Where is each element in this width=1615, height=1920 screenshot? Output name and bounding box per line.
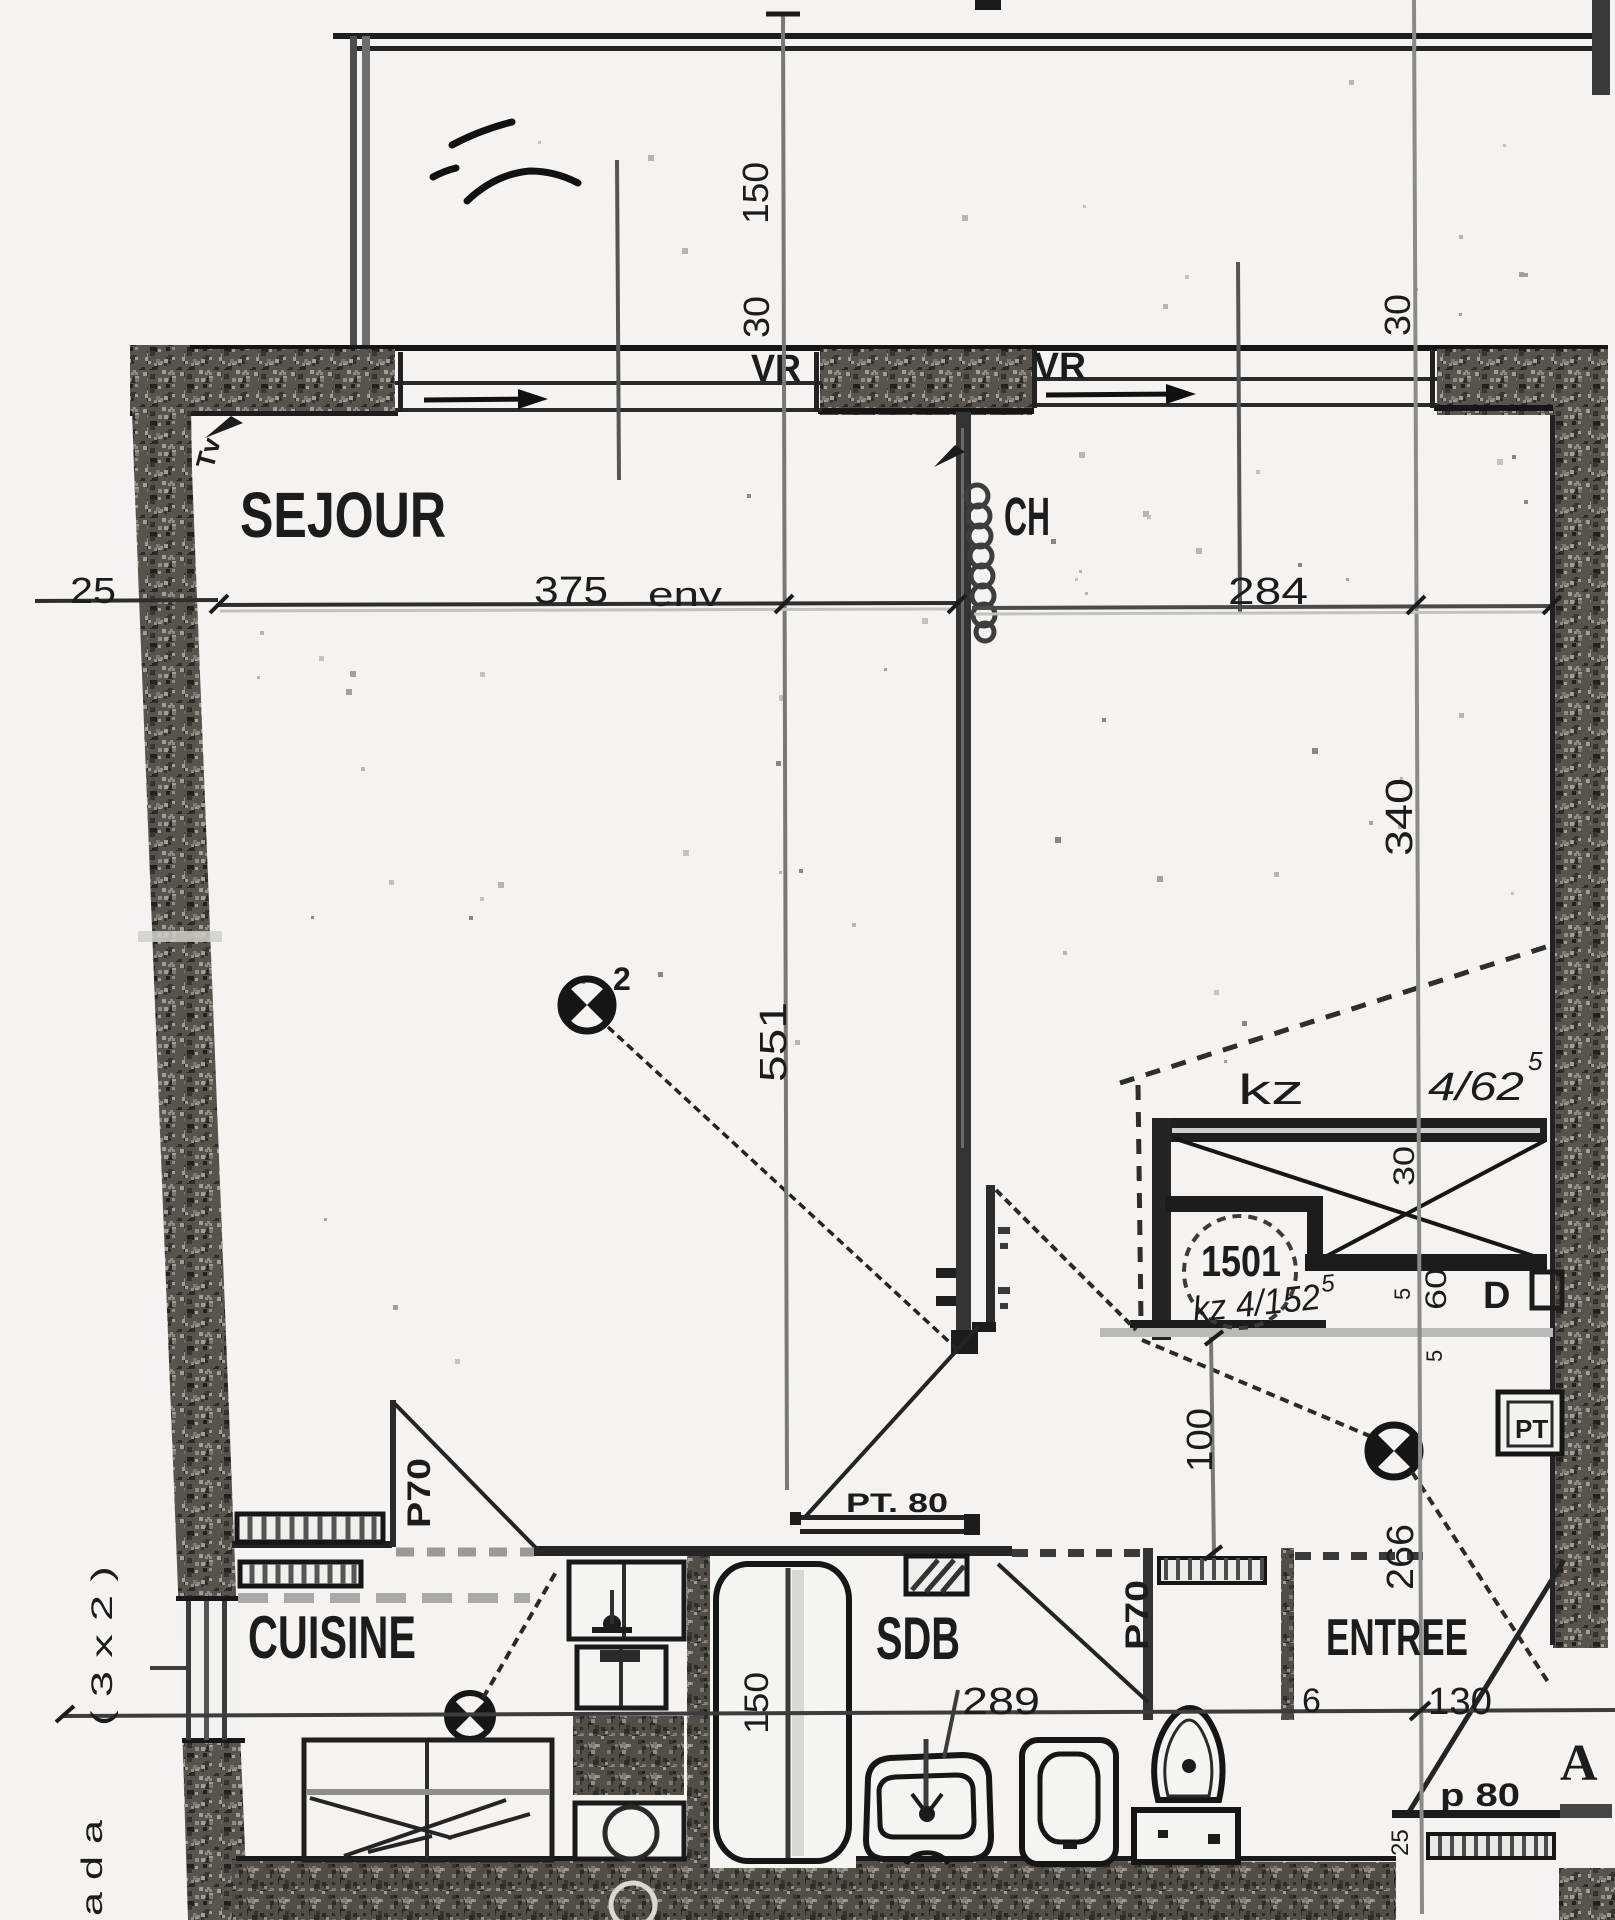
svg-text:25: 25 <box>70 570 116 611</box>
svg-text:PT: PT <box>1515 1414 1548 1444</box>
svg-text:25: 25 <box>1387 1829 1414 1856</box>
svg-text:5: 5 <box>1422 1350 1447 1362</box>
svg-text:ENTREE: ENTREE <box>1326 1609 1468 1667</box>
svg-text:4/62: 4/62 <box>1428 1065 1524 1109</box>
svg-text:30: 30 <box>1377 294 1418 336</box>
svg-text:P70: P70 <box>1119 1580 1155 1650</box>
svg-text:375: 375 <box>534 570 608 612</box>
svg-text:CH: CH <box>1004 487 1050 547</box>
svg-text:( 3 x 2 ): ( 3 x 2 ) <box>86 1566 119 1726</box>
svg-text:100: 100 <box>1179 1408 1220 1472</box>
svg-text:30: 30 <box>736 296 777 338</box>
svg-text:130: 130 <box>1428 1681 1492 1723</box>
svg-text:289: 289 <box>962 1681 1040 1723</box>
svg-text:551: 551 <box>753 1002 795 1082</box>
svg-text:284: 284 <box>1228 571 1308 613</box>
svg-text:2: 2 <box>613 961 631 997</box>
svg-text:PT. 80: PT. 80 <box>846 1488 948 1518</box>
svg-text:5: 5 <box>1528 1046 1543 1076</box>
svg-text:p 80: p 80 <box>1440 1777 1520 1813</box>
svg-text:1501: 1501 <box>1201 1237 1281 1286</box>
svg-text:30: 30 <box>1388 1146 1421 1186</box>
svg-text:VR: VR <box>751 348 801 390</box>
svg-text:SEJOUR: SEJOUR <box>240 479 446 551</box>
svg-text:VR: VR <box>1034 346 1086 388</box>
svg-text:P70: P70 <box>401 1458 437 1528</box>
svg-text:env: env <box>648 576 722 614</box>
svg-text:150: 150 <box>735 162 776 224</box>
svg-text:150: 150 <box>738 1672 776 1734</box>
svg-text:kz: kz <box>1238 1066 1304 1113</box>
svg-text:A: A <box>1560 1735 1598 1792</box>
svg-text:5: 5 <box>1390 1288 1415 1300</box>
svg-text:340: 340 <box>1379 778 1421 856</box>
svg-text:SDB: SDB <box>876 1605 960 1672</box>
svg-text:CUISINE: CUISINE <box>248 1604 416 1671</box>
svg-text:266: 266 <box>1380 1524 1422 1590</box>
svg-text:60: 60 <box>1420 1268 1453 1310</box>
svg-text:6: 6 <box>1302 1682 1321 1720</box>
svg-text:D: D <box>1483 1275 1510 1317</box>
svg-text:a d a: a d a <box>76 1820 109 1916</box>
